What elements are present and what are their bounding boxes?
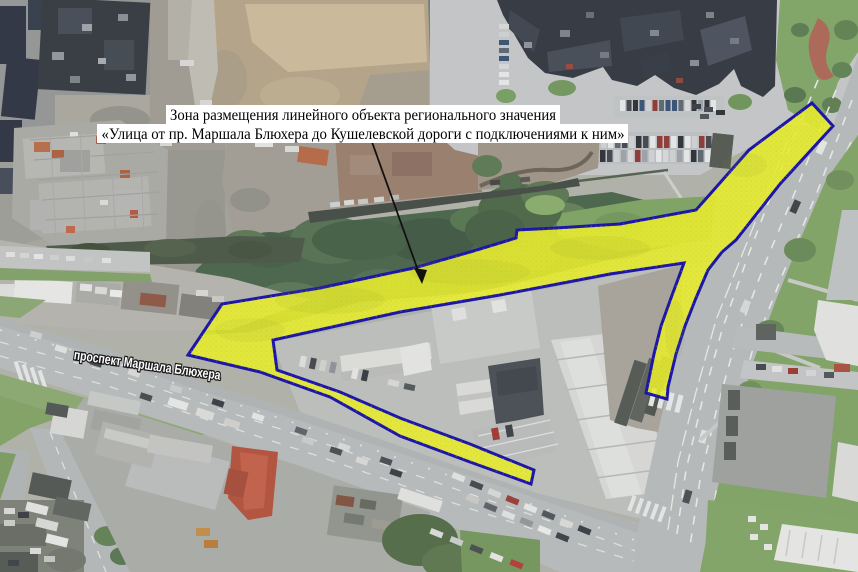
svg-text:Зона размещения линейного объе: Зона размещения линейного объекта регион…: [170, 107, 557, 124]
svg-text:«Улица от пр. Маршала Блюхера: «Улица от пр. Маршала Блюхера до Кушелев…: [102, 126, 625, 143]
